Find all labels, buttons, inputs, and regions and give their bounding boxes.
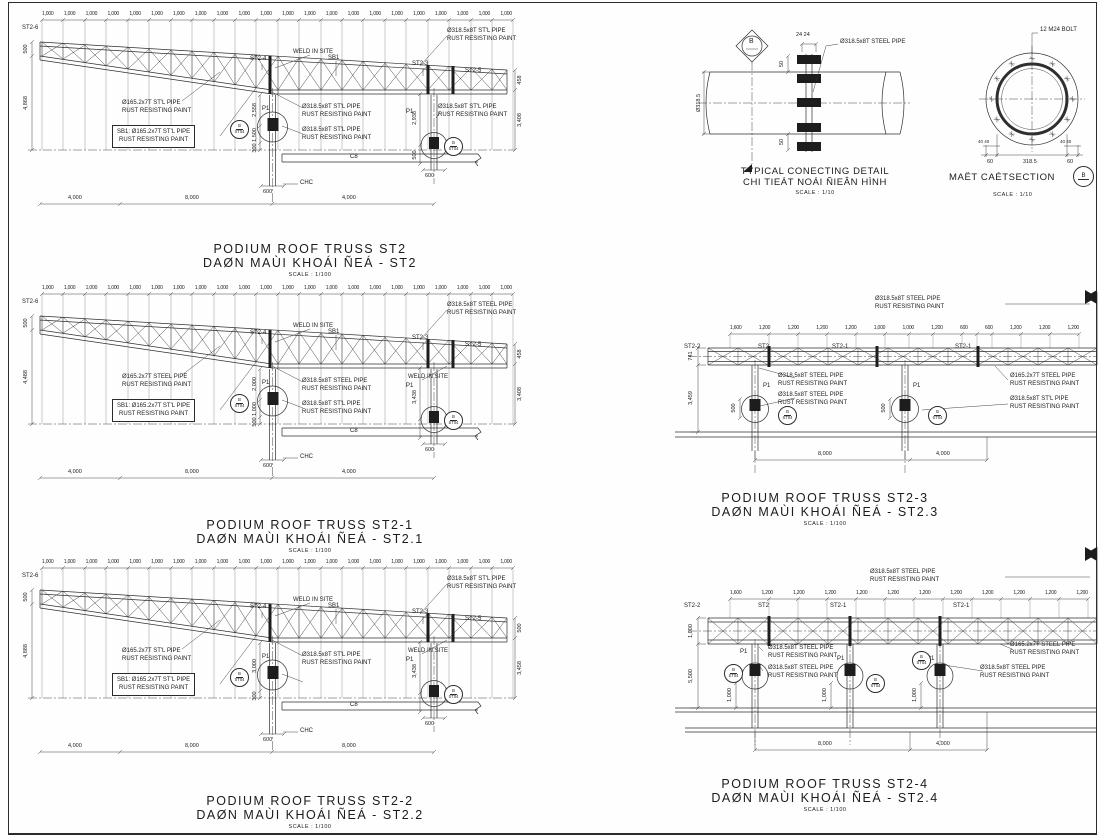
dim-label: 24 24 xyxy=(796,32,810,38)
title-en: PODIUM ROOF TRUSS ST2 xyxy=(10,242,610,256)
dim-label: 1,000 xyxy=(252,402,258,416)
title-vn: CHI TIEÁT NOÁI ÑIEÂN HÌNH xyxy=(690,177,940,188)
pipe-note-line2: RUST RESISTING PAINT xyxy=(870,577,939,585)
dim-value: 1,000 xyxy=(500,285,512,291)
pipe-note: Ø318.5x8T STEEL PIPE RUST RESISTING PAIN… xyxy=(980,665,1049,681)
dim-value: 1,000 xyxy=(348,559,360,565)
dim-label: 500 xyxy=(881,403,887,412)
column-mark: P1 xyxy=(262,654,269,660)
bubble-bottom: ST04 xyxy=(234,404,244,409)
pipe-note: Ø165.2x7T ST'L PIPE RUST RESISTING PAINT xyxy=(122,100,191,116)
dim-label: 4,000 xyxy=(342,469,356,475)
pipe-note-line1: Ø318.5x8T STEEL PIPE xyxy=(768,645,837,653)
dim-label: 2,558 xyxy=(252,103,258,117)
pipe-note-line2: RUST RESISTING PAINT xyxy=(438,112,507,120)
dim-label: 4,000 xyxy=(68,743,82,749)
dim-label: 4,888 xyxy=(23,644,29,658)
bubble-bottom: ST04 xyxy=(448,695,458,700)
sb1-boxed-note: SB1: Ø165.2x7T ST'L PIPE RUST RESISTING … xyxy=(112,399,195,422)
dim-label: 3,408 xyxy=(517,113,523,127)
dim-label: 1,000 xyxy=(822,688,828,702)
dim-value: 1,600 xyxy=(730,325,742,331)
dim-label: 60 xyxy=(987,159,993,165)
pipe-note-line2: RUST RESISTING PAINT xyxy=(1010,650,1079,658)
dim-value: 1,000 xyxy=(238,559,250,565)
dim-value: 1,200 xyxy=(1013,590,1025,596)
dim-value: 1,000 xyxy=(282,559,294,565)
dim-value: 1,000 xyxy=(500,559,512,565)
drawing-title: PODIUM ROOF TRUSS ST2-3 DAØN MAÙI KHOÁI … xyxy=(660,491,990,527)
dim-value: 1,200 xyxy=(824,590,836,596)
dim-label: 1,000 xyxy=(688,624,694,638)
detail-callout-bubble: B ST04 xyxy=(866,674,885,693)
detail-callout-bubble: B ST04 xyxy=(444,411,463,430)
dim-label: 500 xyxy=(23,318,29,327)
dim-value: 1,000 xyxy=(107,285,119,291)
dim-value: 1,000 xyxy=(107,11,119,17)
beam-mark: C8 xyxy=(350,154,358,160)
detail-callout-bubble: B ST04 xyxy=(724,664,743,683)
member-mark: ST2 xyxy=(758,344,769,350)
dim-value: 1,000 xyxy=(435,11,447,17)
column-mark: P1 xyxy=(837,656,844,662)
sb1-boxed-note: SB1: Ø165.2x7T ST'L PIPE RUST RESISTING … xyxy=(112,673,195,696)
detail-callout-bubble: B ST04 xyxy=(230,394,249,413)
dim-value: 1,000 xyxy=(500,11,512,17)
top-dimension-row: 1,0001,0001,0001,0001,0001,0001,0001,000… xyxy=(42,11,512,17)
member-mark: ST2-2 xyxy=(684,603,700,609)
dim-value: 1,200 xyxy=(950,590,962,596)
dim-value: 1,000 xyxy=(391,11,403,17)
pipe-note-line2: RUST RESISTING PAINT xyxy=(447,310,516,318)
dim-value: 1,000 xyxy=(326,11,338,17)
pipe-note: Ø165.2x7T STEEL PIPE RUST RESISTING PAIN… xyxy=(1010,373,1079,389)
top-dimension-row: 1,0001,0001,0001,0001,0001,0001,0001,000… xyxy=(42,285,512,291)
pipe-note: Ø318.5x8T STEEL PIPE RUST RESISTING PAIN… xyxy=(870,569,939,585)
member-mark: ST2-1 xyxy=(953,603,969,609)
dim-value: 1,600 xyxy=(730,590,742,596)
dim-value: 1,000 xyxy=(260,285,272,291)
column-mark: P1 xyxy=(763,383,770,389)
dim-label: 600 xyxy=(425,721,434,727)
drawing-section-b: 12 M24 BOLT 40 40 40 40 60 318.5 60 MAËT… xyxy=(945,14,1100,214)
dim-value: 1,000 xyxy=(282,285,294,291)
dim-value: 1,000 xyxy=(86,285,98,291)
drawing-connecting-detail: 24 24 Ø318.5x8T STEEL PIPE B Ø318.5 50 5… xyxy=(690,14,940,214)
pipe-note-line2: RUST RESISTING PAINT xyxy=(1010,381,1079,389)
pipe-note-line2: RUST RESISTING PAINT xyxy=(302,660,371,668)
dim-value: 1,000 xyxy=(151,559,163,565)
dim-value: 1,000 xyxy=(195,11,207,17)
dim-label: 500 xyxy=(252,417,258,426)
dim-value: 1,000 xyxy=(260,11,272,17)
bolt-note: 12 M24 BOLT xyxy=(1040,27,1077,35)
dim-value: 1,000 xyxy=(391,285,403,291)
pipe-note-line1: Ø318.5x8T ST'L PIPE xyxy=(447,576,516,584)
pipe-note-line2: RUST RESISTING PAINT xyxy=(302,112,371,120)
dim-value: 1,000 xyxy=(369,559,381,565)
detail-callout-bubble: B ST04 xyxy=(444,137,463,156)
bubble-bottom: ST04 xyxy=(448,421,458,426)
detail-callout-bubble: B ST04 xyxy=(444,685,463,704)
column-base-mark: CHC xyxy=(300,728,313,734)
dim-value: 1,200 xyxy=(1039,325,1051,331)
dim-label: 1,000 xyxy=(912,688,918,702)
pipe-note: Ø318.5x8T ST'L PIPE RUST RESISTING PAINT xyxy=(1010,396,1079,412)
dim-value: 1,000 xyxy=(435,285,447,291)
title-scale: SCALE : 1/100 xyxy=(660,521,990,527)
dim-value: 1,000 xyxy=(413,559,425,565)
column-mark: P1 xyxy=(262,380,269,386)
dim-value: 1,200 xyxy=(816,325,828,331)
title-scale: SCALE : 1/100 xyxy=(10,548,610,554)
dim-value: 1,000 xyxy=(151,11,163,17)
drawing-title: PODIUM ROOF TRUSS ST2-2 DAØN MAÙI KHOÁI … xyxy=(10,794,610,830)
dim-label: 600 xyxy=(425,447,434,453)
dim-value: 1,000 xyxy=(173,11,185,17)
detail-callout-bubble: B ST04 xyxy=(778,406,797,425)
dim-label: 50 xyxy=(779,61,785,67)
member-mark: SB1 xyxy=(328,55,339,61)
title-scale: SCALE : 1/100 xyxy=(10,272,610,278)
pipe-note: Ø318.5x8T ST'L PIPE RUST RESISTING PAINT xyxy=(302,652,371,668)
weld-note: WELD IN SITE xyxy=(408,374,448,380)
member-mark: ST2-3 xyxy=(412,61,428,67)
dim-value: 1,000 xyxy=(173,559,185,565)
sb1-note-line2: RUST RESISTING PAINT xyxy=(117,410,190,418)
dim-value: 1,000 xyxy=(129,285,141,291)
column-mark: P1 xyxy=(913,383,920,389)
pipe-note: Ø165.2x7T STEEL PIPE RUST RESISTING PAIN… xyxy=(122,374,191,390)
pipe-note: Ø318.5x8T STEEL PIPE RUST RESISTING PAIN… xyxy=(778,373,847,389)
pipe-note-line2: RUST RESISTING PAINT xyxy=(302,409,371,417)
dim-value: 1,000 xyxy=(369,285,381,291)
member-mark: ST2-1 xyxy=(832,344,848,350)
pipe-note: Ø318.5x8T STEEL PIPE RUST RESISTING PAIN… xyxy=(875,296,944,312)
member-mark: ST2-5 xyxy=(465,68,481,74)
dim-label: 2,938 xyxy=(412,111,418,125)
pipe-note-line1: Ø318.5x8T ST'L PIPE xyxy=(302,652,371,660)
weld-note: WELD IN SITE xyxy=(293,597,333,603)
dim-label: 500 xyxy=(412,150,418,159)
weld-note: WELD IN SITE xyxy=(293,323,333,329)
drawing-truss-st2-3: Ø318.5x8T STEEL PIPE RUST RESISTING PAIN… xyxy=(660,288,1100,538)
dim-label: 3,438 xyxy=(412,390,418,404)
sb1-note-line1: SB1: Ø165.2x7T ST'L PIPE xyxy=(117,128,190,136)
dim-label: 8,000 xyxy=(185,195,199,201)
title-scale: SCALE : 1/10 xyxy=(993,192,1032,199)
pipe-note: Ø318.5x8T STEEL PIPE RUST RESISTING PAIN… xyxy=(768,665,837,681)
title-vn: DAØN MAÙI KHOÁI ÑEÁ - ST2.4 xyxy=(660,791,990,805)
beam-mark: C8 xyxy=(350,428,358,434)
dim-label: 741 xyxy=(688,351,694,360)
dim-label: 600 xyxy=(263,189,272,195)
sb1-note-line2: RUST RESISTING PAINT xyxy=(117,684,190,692)
member-mark: ST2-5 xyxy=(465,342,481,348)
dim-label: 600 xyxy=(263,737,272,743)
drawing-title: PODIUM ROOF TRUSS ST2-4 DAØN MAÙI KHOÁI … xyxy=(660,777,990,813)
column-mark: P1 xyxy=(262,106,269,112)
column-mark: P1 xyxy=(740,649,747,655)
pipe-note-line1: Ø318.5x8T ST'L PIPE xyxy=(438,104,507,112)
pipe-note-line2: RUST RESISTING PAINT xyxy=(122,108,191,116)
dim-label: 3,459 xyxy=(688,391,694,405)
dim-value: 1,200 xyxy=(793,590,805,596)
dim-value: 1,000 xyxy=(260,559,272,565)
sb1-note-line1: SB1: Ø165.2x7T ST'L PIPE xyxy=(117,402,190,410)
title-en: PODIUM ROOF TRUSS ST2-2 xyxy=(10,794,610,808)
pipe-note: Ø165.2x7T ST'L PIPE RUST RESISTING PAINT xyxy=(122,648,191,664)
dim-value: 1,000 xyxy=(903,325,915,331)
dim-value: 1,000 xyxy=(217,559,229,565)
dim-value: 1,000 xyxy=(457,285,469,291)
dim-value: 1,000 xyxy=(413,11,425,17)
dim-value: 1,200 xyxy=(931,325,943,331)
dim-label: 500 xyxy=(23,44,29,53)
dim-value: 1,200 xyxy=(1010,325,1022,331)
drawing-truss-st2-2: ST2-6 1,0001,0001,0001,0001,0001,0001,00… xyxy=(10,556,610,836)
pipe-note-line2: RUST RESISTING PAINT xyxy=(447,584,516,592)
grid-mark: ST2-6 xyxy=(22,25,38,31)
cad-sheet: ST2-6 1,0001,0001,0001,0001,0001,0001,00… xyxy=(0,0,1100,839)
dim-value: 1,000 xyxy=(107,559,119,565)
bubble-bottom: ST04 xyxy=(234,678,244,683)
dim-value: 1,000 xyxy=(304,285,316,291)
detail-callout-bubble: B ST04 xyxy=(230,120,249,139)
title-vn: DAØN MAÙI KHOÁI ÑEÁ - ST2 xyxy=(10,256,610,270)
pipe-note-line1: Ø165.2x7T STEEL PIPE xyxy=(122,374,191,382)
dim-value: 1,200 xyxy=(919,590,931,596)
dim-label: 458 xyxy=(517,75,523,84)
title-vn: DAØN MAÙI KHOÁI ÑEÁ - ST2.1 xyxy=(10,532,610,546)
dim-value: 1,000 xyxy=(304,11,316,17)
dim-label: 600 xyxy=(425,173,434,179)
pipe-note-line1: Ø165.2x7T ST'L PIPE xyxy=(122,648,191,656)
dim-value: 1,000 xyxy=(151,285,163,291)
dim-value: 1,000 xyxy=(369,11,381,17)
dim-value: 1,000 xyxy=(238,285,250,291)
column-mark: P1 xyxy=(406,383,413,389)
dim-value: 1,000 xyxy=(42,11,54,17)
dim-value: 1,000 xyxy=(479,285,491,291)
dim-value: 1,000 xyxy=(64,559,76,565)
top-dimension-row: 1,6001,2001,2001,2001,2001,0001,0001,200… xyxy=(730,325,1079,331)
dim-label: 4,000 xyxy=(936,451,950,457)
pipe-note-line1: Ø318.5x8T STEEL PIPE xyxy=(768,665,837,673)
drawing-title-vn: MAËT CAÉTSECTION xyxy=(949,172,1055,184)
bubble-bottom: ST04 xyxy=(916,661,926,666)
detail-callout-bubble: B ST04 xyxy=(928,406,947,425)
title-en: PODIUM ROOF TRUSS ST2-3 xyxy=(660,491,990,505)
dim-label: 4,000 xyxy=(68,469,82,475)
title-vn: DAØN MAÙI KHOÁI ÑEÁ - ST2.2 xyxy=(10,808,610,822)
pipe-note: Ø318.5x8T STEEL PIPE RUST RESISTING PAIN… xyxy=(768,645,837,661)
member-mark: ST2 xyxy=(758,603,769,609)
title-scale: SCALE : 1/100 xyxy=(10,824,610,830)
pipe-note-line1: Ø165.2x7T STEEL PIPE xyxy=(1010,373,1079,381)
member-mark: ST2-1 xyxy=(955,344,971,350)
pipe-note-line2: RUST RESISTING PAINT xyxy=(768,673,837,681)
pipe-note: Ø318.5x8T ST'L PIPE RUST RESISTING PAINT xyxy=(302,401,371,417)
detail-callout-bubble: B ST04 xyxy=(912,651,931,670)
dim-label: 2,000 xyxy=(252,377,258,391)
drawing-truss-st2-1: ST2-6 1,0001,0001,0001,0001,0001,0001,00… xyxy=(10,282,610,556)
dim-label: 500 xyxy=(23,592,29,601)
dim-value: 1,000 xyxy=(874,325,886,331)
dim-label: 8,000 xyxy=(185,469,199,475)
dim-label: 40 40 xyxy=(1060,139,1071,144)
pipe-note: Ø165.2x7T STEEL PIPE RUST RESISTING PAIN… xyxy=(1010,642,1079,658)
dim-label: 4,868 xyxy=(23,96,29,110)
dim-label: 8,000 xyxy=(342,743,356,749)
dim-label: 600 xyxy=(263,463,272,469)
pipe-note: Ø318.5x8T ST'L PIPE RUST RESISTING PAINT xyxy=(302,127,371,143)
pipe-note-line2: RUST RESISTING PAINT xyxy=(122,382,191,390)
drawing-title: TYPICAL CONECTING DETAIL CHI TIEÁT NOÁI … xyxy=(690,166,940,196)
drawing-truss-st2-4: Ø318.5x8T STEEL PIPE RUST RESISTING PAIN… xyxy=(660,545,1100,835)
pipe-note-line1: Ø318.5x8T ST'L PIPE xyxy=(447,28,516,36)
beam-mark: C8 xyxy=(350,702,358,708)
dim-value: 1,200 xyxy=(1076,590,1088,596)
top-dimension-row: 1,6001,2001,2001,2001,2001,2001,2001,200… xyxy=(730,590,1088,596)
member-mark: ST2-4 xyxy=(250,330,266,336)
dim-value: 1,200 xyxy=(982,590,994,596)
dim-value: 1,000 xyxy=(64,285,76,291)
dim-value: 600 xyxy=(985,325,993,331)
dim-value: 1,200 xyxy=(788,325,800,331)
dim-value: 1,000 xyxy=(304,559,316,565)
bubble-bottom: ST04 xyxy=(870,684,880,689)
pipe-note-line1: Ø318.5x8T STEEL PIPE xyxy=(447,302,516,310)
dim-label: 3,408 xyxy=(517,387,523,401)
pipe-note: Ø318.5x8T ST'L PIPE RUST RESISTING PAINT xyxy=(447,28,516,44)
pipe-note: Ø318.5x8T ST'L PIPE RUST RESISTING PAINT xyxy=(438,104,507,120)
pipe-note-line1: Ø318.5x8T STEEL PIPE xyxy=(778,392,847,400)
pipe-note-line1: Ø318.5x8T ST'L PIPE xyxy=(302,104,371,112)
dim-label: 1,000 xyxy=(727,688,733,702)
dim-label: 60 xyxy=(1067,159,1073,165)
bubble-bottom: ST04 xyxy=(448,147,458,152)
grid-mark: ST2-6 xyxy=(22,299,38,305)
pipe-note-line2: RUST RESISTING PAINT xyxy=(768,653,837,661)
dim-value: 1,000 xyxy=(217,11,229,17)
bubble-bottom: ST04 xyxy=(728,674,738,679)
dim-value: 1,000 xyxy=(326,559,338,565)
pipe-note-line1: Ø318.5x8T ST'L PIPE xyxy=(302,401,371,409)
pipe-note-line2: RUST RESISTING PAINT xyxy=(875,304,944,312)
pipe-note: Ø318.5x8T ST'L PIPE RUST RESISTING PAINT xyxy=(302,104,371,120)
sb1-note-line1: SB1: Ø165.2x7T ST'L PIPE xyxy=(117,676,190,684)
sb1-boxed-note: SB1: Ø165.2x7T ST'L PIPE RUST RESISTING … xyxy=(112,125,195,148)
dim-label: 4,000 xyxy=(936,741,950,747)
pipe-note: Ø318.5x8T STEEL PIPE RUST RESISTING PAIN… xyxy=(447,302,516,318)
dim-value: 1,000 xyxy=(86,11,98,17)
pipe-note-line1: Ø318.5x8T STEEL PIPE xyxy=(778,373,847,381)
dim-value: 1,200 xyxy=(845,325,857,331)
dim-label: 50 xyxy=(779,139,785,145)
dim-value: 1,000 xyxy=(391,559,403,565)
title-en: PODIUM ROOF TRUSS ST2-1 xyxy=(10,518,610,532)
detail-callout-bubble: B ST04 xyxy=(230,668,249,687)
grid-mark: ST2-6 xyxy=(22,573,38,579)
pipe-note-line2: RUST RESISTING PAINT xyxy=(447,36,516,44)
dim-label: 40 40 xyxy=(978,139,989,144)
dim-value: 1,000 xyxy=(195,559,207,565)
dim-label: Ø318.5 xyxy=(696,94,702,112)
dim-value: 1,200 xyxy=(1067,325,1079,331)
section-bubble: B xyxy=(1073,166,1094,187)
member-mark: ST2-3 xyxy=(412,609,428,615)
top-dimension-row: 1,0001,0001,0001,0001,0001,0001,0001,000… xyxy=(42,559,512,565)
member-mark: SB1 xyxy=(328,329,339,335)
weld-note: WELD IN SITE xyxy=(408,648,448,654)
pipe-note-line2: RUST RESISTING PAINT xyxy=(778,381,847,389)
title-en: TYPICAL CONECTING DETAIL xyxy=(690,166,940,177)
dim-value: 1,000 xyxy=(479,11,491,17)
drawing-title: PODIUM ROOF TRUSS ST2 DAØN MAÙI KHOÁI ÑE… xyxy=(10,242,610,278)
pipe-note-line2: RUST RESISTING PAINT xyxy=(1010,404,1079,412)
dim-value: 1,000 xyxy=(129,559,141,565)
dim-value: 1,200 xyxy=(761,590,773,596)
dim-value: 1,000 xyxy=(348,11,360,17)
pipe-note-line2: RUST RESISTING PAINT xyxy=(980,673,1049,681)
dim-label: 3,000 xyxy=(252,659,258,673)
pipe-note: Ø318.5x8T STEEL PIPE RUST RESISTING PAIN… xyxy=(302,378,371,394)
bubble-top: B xyxy=(1078,173,1088,180)
pipe-note-line1: Ø318.5x8T STEEL PIPE xyxy=(870,569,939,577)
dim-value: 1,000 xyxy=(129,11,141,17)
pipe-note-line2: RUST RESISTING PAINT xyxy=(302,135,371,143)
dim-value: 600 xyxy=(960,325,968,331)
pipe-note-line1: Ø165.2x7T STEEL PIPE xyxy=(1010,642,1079,650)
title-scale: SCALE : 1/100 xyxy=(660,807,990,813)
weld-note: WELD IN SITE xyxy=(293,49,333,55)
pipe-note-line2: RUST RESISTING PAINT xyxy=(302,386,371,394)
pipe-note-line1: Ø318.5x8T ST'L PIPE xyxy=(1010,396,1079,404)
dim-value: 1,200 xyxy=(887,590,899,596)
pipe-note: Ø318.5x8T STEEL PIPE xyxy=(840,39,905,47)
dim-label: 318.5 xyxy=(1023,159,1037,165)
dim-label: 4,000 xyxy=(68,195,82,201)
dim-value: 1,000 xyxy=(413,285,425,291)
dim-value: 1,000 xyxy=(457,11,469,17)
dim-label: 458 xyxy=(517,349,523,358)
drawing-title: PODIUM ROOF TRUSS ST2-1 DAØN MAÙI KHOÁI … xyxy=(10,518,610,554)
dim-label: 500 xyxy=(517,623,523,632)
member-mark: ST2-5 xyxy=(465,616,481,622)
column-base-mark: CHC xyxy=(300,454,313,460)
dim-value: 1,200 xyxy=(856,590,868,596)
member-mark: ST2-3 xyxy=(412,335,428,341)
dim-value: 1,000 xyxy=(173,285,185,291)
dim-value: 1,000 xyxy=(195,285,207,291)
dim-label: 1,500 xyxy=(252,128,258,142)
dim-label: 3,438 xyxy=(412,664,418,678)
dim-label: 8,000 xyxy=(818,451,832,457)
title-vn: DAØN MAÙI KHOÁI ÑEÁ - ST2.3 xyxy=(660,505,990,519)
dim-value: 1,000 xyxy=(238,11,250,17)
sb1-note-line2: RUST RESISTING PAINT xyxy=(117,136,190,144)
pipe-note-line1: Ø318.5x8T ST'L PIPE xyxy=(302,127,371,135)
dim-value: 1,000 xyxy=(282,11,294,17)
drawing-truss-st2: ST2-6 1,0001,0001,0001,0001,0001,0001,00… xyxy=(10,8,610,280)
dim-value: 1,000 xyxy=(479,559,491,565)
column-base-mark: CHC xyxy=(300,180,313,186)
dim-label: 3,458 xyxy=(517,661,523,675)
pipe-note-line1: Ø318.5x8T STEEL PIPE xyxy=(980,665,1049,673)
member-mark: ST2-4 xyxy=(250,604,266,610)
dim-value: 1,000 xyxy=(435,559,447,565)
